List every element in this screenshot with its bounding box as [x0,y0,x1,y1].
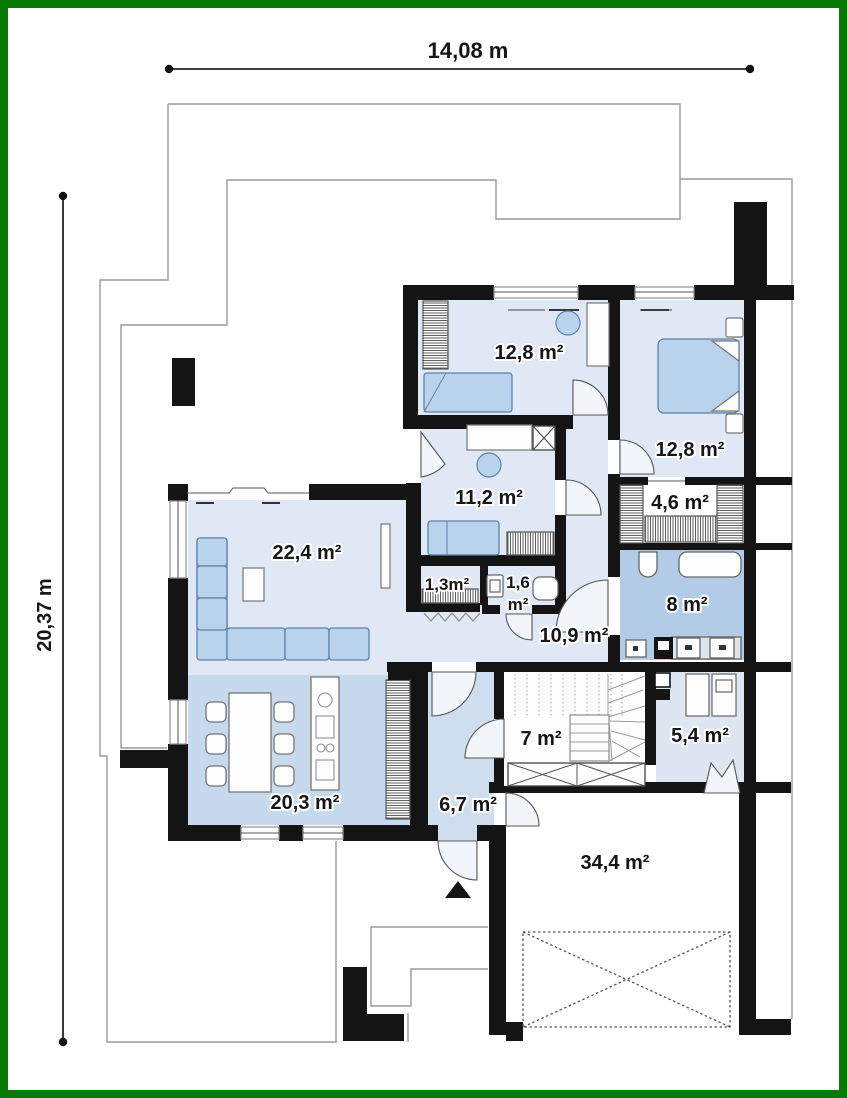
svg-text:12,8 m²: 12,8 m² [495,342,564,364]
svg-text:22,4 m²: 22,4 m² [273,542,342,564]
svg-text:m²: m² [508,595,529,614]
svg-text:12,8 m²: 12,8 m² [656,439,725,461]
svg-text:14,08 m: 14,08 m [428,38,509,63]
svg-text:6,7 m²: 6,7 m² [439,794,497,816]
svg-text:7 m²: 7 m² [520,728,561,750]
svg-text:1,6: 1,6 [506,573,530,592]
svg-text:10,9 m²: 10,9 m² [540,625,609,647]
svg-text:20,37 m: 20,37 m [34,578,56,651]
svg-text:20,3 m²: 20,3 m² [271,792,340,814]
svg-text:5,4 m²: 5,4 m² [671,725,729,747]
svg-text:4,6 m²: 4,6 m² [651,492,709,514]
svg-text:8 m²: 8 m² [666,594,707,616]
svg-text:11,2 m²: 11,2 m² [455,487,523,509]
svg-text:1,3m²: 1,3m² [425,575,470,594]
svg-text:34,4 m²: 34,4 m² [581,852,650,874]
